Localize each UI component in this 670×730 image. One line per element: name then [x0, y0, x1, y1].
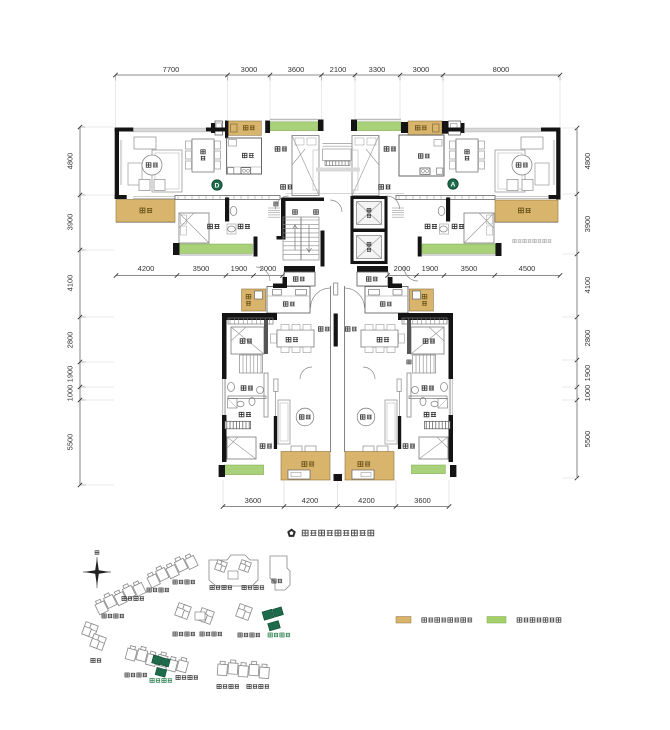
svg-text:3600: 3600 [414, 496, 431, 505]
svg-text:3000: 3000 [413, 65, 430, 74]
svg-text:4100: 4100 [66, 275, 75, 292]
svg-text:8000: 8000 [493, 65, 510, 74]
svg-text:3300: 3300 [369, 65, 386, 74]
svg-text:3500: 3500 [461, 264, 478, 273]
svg-text:2100: 2100 [330, 65, 347, 74]
svg-text:3000: 3000 [241, 65, 258, 74]
svg-text:4500: 4500 [519, 264, 536, 273]
svg-text:3600: 3600 [288, 65, 305, 74]
svg-text:D: D [215, 183, 220, 190]
svg-text:1900: 1900 [66, 366, 75, 383]
svg-text:2800: 2800 [66, 332, 75, 349]
svg-text:4100: 4100 [583, 277, 592, 294]
svg-text:1000: 1000 [66, 385, 75, 402]
svg-text:3600: 3600 [245, 496, 262, 505]
svg-text:2000: 2000 [394, 264, 411, 273]
svg-text:1900: 1900 [583, 365, 592, 382]
svg-text:2800: 2800 [583, 330, 592, 347]
svg-text:3900: 3900 [66, 214, 75, 231]
svg-text:4200: 4200 [358, 496, 375, 505]
svg-text:7700: 7700 [163, 65, 180, 74]
svg-text:3500: 3500 [193, 264, 210, 273]
svg-text:1000: 1000 [583, 385, 592, 402]
svg-text:4200: 4200 [302, 496, 319, 505]
svg-text:1900: 1900 [422, 264, 439, 273]
svg-text:5500: 5500 [583, 431, 592, 448]
svg-text:4800: 4800 [66, 153, 75, 170]
svg-text:4200: 4200 [138, 264, 155, 273]
svg-text:A: A [451, 182, 456, 189]
svg-text:1900: 1900 [231, 264, 248, 273]
svg-text:3900: 3900 [583, 216, 592, 233]
svg-text:4800: 4800 [583, 153, 592, 170]
svg-text:5500: 5500 [66, 434, 75, 451]
